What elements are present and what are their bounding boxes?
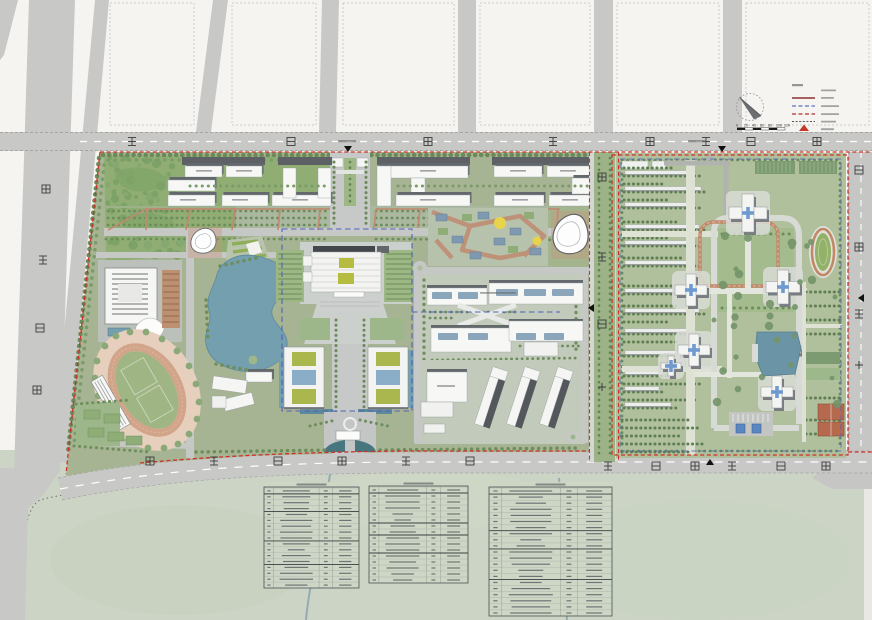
svg-text:60: 60 (760, 123, 764, 127)
svg-text:20: 20 (744, 123, 748, 127)
svg-text:0: 0 (736, 123, 738, 127)
svg-text:100: 100 (776, 123, 782, 127)
svg-text:120: 120 (784, 123, 790, 127)
svg-text:80: 80 (768, 123, 772, 127)
svg-text:40: 40 (752, 123, 756, 127)
